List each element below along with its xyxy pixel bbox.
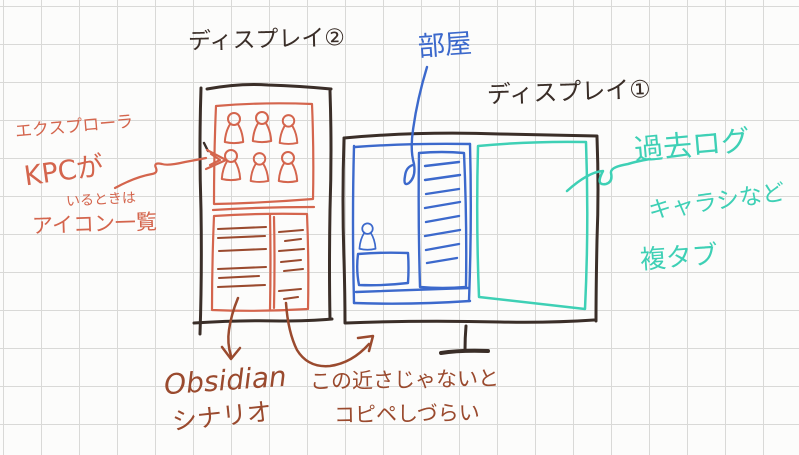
explorer-arrow — [115, 150, 226, 188]
person-icon — [280, 115, 298, 144]
icon-list-label: アイコン一覧 — [32, 211, 158, 237]
room-label: 部屋 — [417, 30, 473, 62]
input-box — [357, 253, 408, 286]
multi-tab-label: 複タブ — [639, 242, 719, 275]
sketch-canvas: ディスプレイ② ディスプレイ① 部屋 エクスプローラ KPCが いるときは アイ… — [0, 0, 799, 455]
copy-paste-note-line1: この近さじゃないと — [310, 367, 499, 392]
list-text-lines-right — [279, 230, 304, 299]
display1-title: ディスプレイ① — [487, 77, 652, 108]
display2-title: ディスプレイ② — [188, 26, 346, 54]
person-icon — [279, 152, 297, 182]
copy-paste-note-line2: コピペしづらい — [334, 402, 480, 427]
room-pointer-line — [405, 67, 428, 184]
display1-room-panel — [353, 67, 471, 304]
display1-log-panel — [477, 142, 650, 309]
obsidian-arrow — [222, 298, 240, 359]
list-text-lines-left — [218, 227, 266, 287]
display2-list-panel — [212, 214, 308, 311]
person-icon — [222, 150, 240, 180]
chat-log-lines — [425, 162, 460, 263]
person-icon — [359, 223, 375, 249]
obsidian-label: Obsidian — [163, 362, 287, 400]
display2-icon-panel — [213, 103, 314, 210]
person-icon — [251, 153, 269, 182]
monitor-stand — [441, 326, 488, 353]
person-icon — [225, 113, 243, 143]
person-icon — [253, 112, 271, 142]
annotation-arrows — [115, 150, 373, 366]
